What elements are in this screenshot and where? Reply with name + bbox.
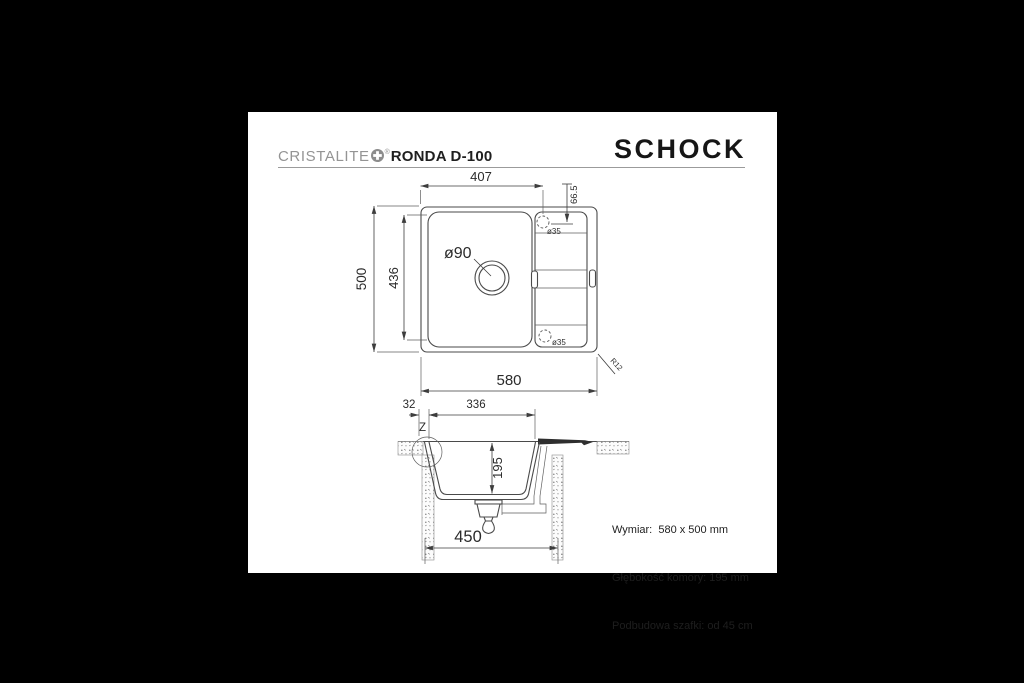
drain-diameter-label: ø90 [444, 245, 472, 262]
dim-450-label: 450 [454, 528, 482, 546]
top-view: ø90 ø35 ø35 407 66.5 [354, 169, 625, 396]
countertop-hatch-right [597, 442, 629, 455]
dim-r12-label: R12 [609, 356, 625, 372]
screenshot-background: CRISTALITE ® RONDA D-100 SCHOCK [0, 0, 1024, 683]
dim-195: 195 [490, 443, 505, 494]
drainboard-clip-right [590, 270, 596, 287]
dim-580: 580 [421, 357, 597, 396]
spec-bowl-depth: Głębokość komory: 195 mm [612, 570, 753, 586]
datasheet-page: CRISTALITE ® RONDA D-100 SCHOCK [248, 112, 777, 573]
countertop-hatch-left [398, 442, 423, 456]
dim-r12: R12 [598, 354, 625, 374]
bowl-section-inner [429, 442, 536, 495]
dim-450: 450 [425, 528, 558, 564]
dim-195-label: 195 [490, 457, 505, 479]
trap-cup [477, 504, 500, 517]
dim-436-label: 436 [386, 267, 401, 289]
drainboard-clip-left [532, 271, 538, 288]
detail-marker-label: Z [419, 422, 426, 434]
faucet-hole-bottom-label: ø35 [552, 338, 566, 347]
trap-bulb [483, 521, 495, 534]
drain-flange [475, 500, 502, 504]
dim-32-label: 32 [403, 399, 416, 411]
dim-500-label: 500 [354, 268, 369, 291]
dim-336-label: 336 [466, 399, 485, 411]
dim-66-5-label: 66.5 [569, 186, 580, 205]
spec-dimensions: Wymiar: 580 x 500 mm [612, 522, 753, 538]
drainboard-ledge-section [538, 439, 593, 446]
faucet-hole-top-label: ø35 [547, 227, 561, 236]
spec-cabinet-size: Podbudowa szafki: od 45 cm [612, 618, 753, 634]
cabinet-wall-right [552, 455, 563, 560]
dim-580-label: 580 [496, 372, 521, 389]
section-view: Z 32 336 195 [398, 399, 629, 564]
cabinet-wall-left [422, 455, 434, 560]
dim-407-label: 407 [470, 169, 492, 184]
spec-list: Wymiar: 580 x 500 mm Głębokość komory: 1… [612, 490, 753, 666]
waste-piping [502, 446, 547, 515]
